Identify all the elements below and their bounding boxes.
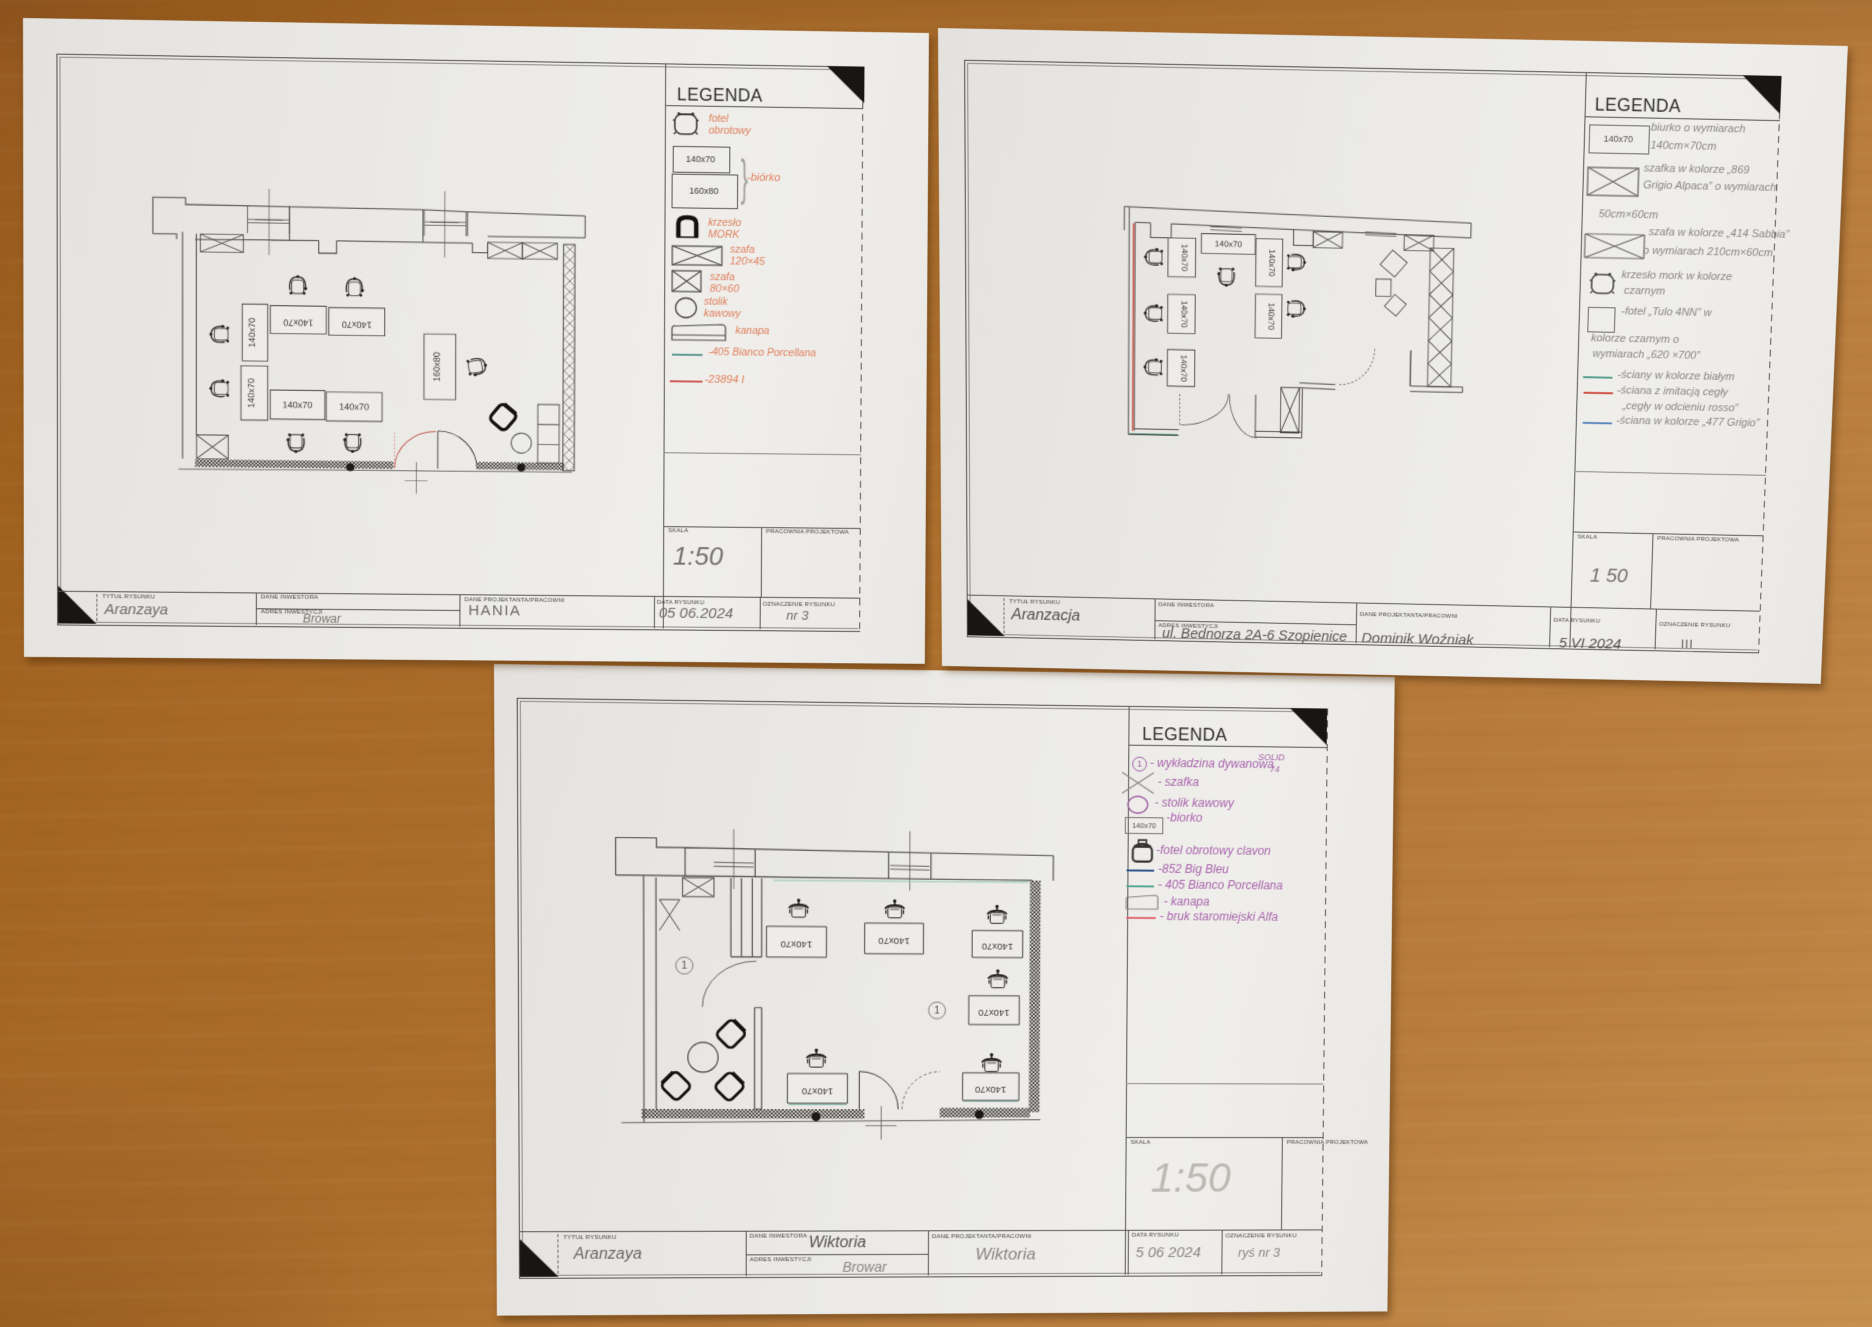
svg-text:140x70: 140x70 <box>801 1086 833 1097</box>
svg-text:140x70: 140x70 <box>1215 239 1243 249</box>
svg-text:1: 1 <box>934 1005 940 1016</box>
svg-text:140x70: 140x70 <box>342 320 372 330</box>
svg-text:140x70: 140x70 <box>283 318 313 328</box>
svg-text:140x70: 140x70 <box>247 318 257 348</box>
svg-text:140x70: 140x70 <box>978 1007 1010 1018</box>
svg-text:140x70: 140x70 <box>1179 300 1189 328</box>
svg-text:140x70: 140x70 <box>975 1084 1007 1095</box>
svg-text:140x70: 140x70 <box>1266 303 1276 331</box>
svg-text:140x70: 140x70 <box>780 939 812 950</box>
svg-text:140x70: 140x70 <box>981 941 1013 952</box>
svg-text:160x80: 160x80 <box>432 352 442 382</box>
svg-text:1: 1 <box>681 960 687 972</box>
svg-text:140x70: 140x70 <box>878 935 910 946</box>
svg-text:140x70: 140x70 <box>246 378 256 408</box>
svg-text:140x70: 140x70 <box>1179 355 1189 382</box>
svg-text:140x70: 140x70 <box>1267 249 1277 277</box>
svg-text:140x70: 140x70 <box>339 402 369 412</box>
svg-text:140x70: 140x70 <box>282 400 312 410</box>
svg-text:140x70: 140x70 <box>1180 244 1190 272</box>
